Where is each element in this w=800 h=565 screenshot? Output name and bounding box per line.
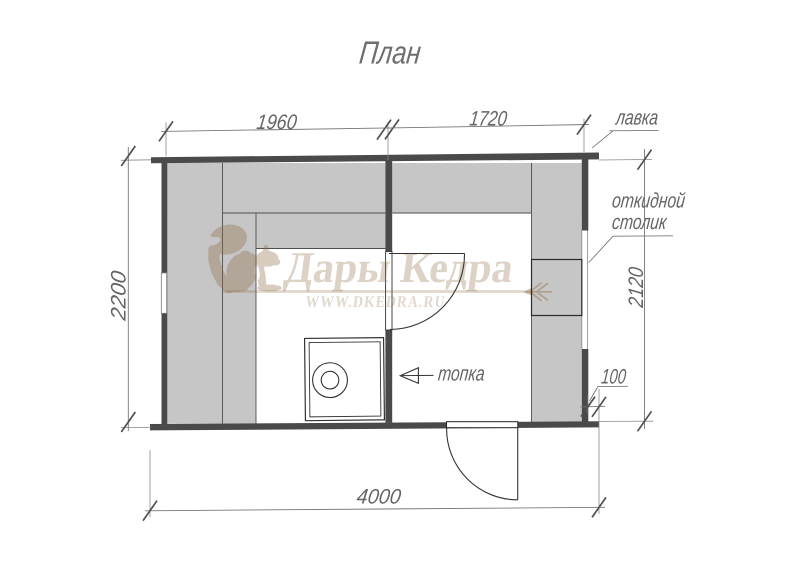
svg-text:топка: топка [437,361,486,385]
svg-text:откидной: откидной [611,188,686,212]
svg-text:2120: 2120 [625,266,649,310]
svg-text:лавка: лавка [614,105,659,129]
svg-text:Дары Кедра: Дары Кедра [282,244,516,292]
svg-text:2200: 2200 [106,269,130,323]
svg-text:1720: 1720 [468,108,508,131]
svg-text:столик: столик [611,210,669,234]
svg-text:План: План [357,36,422,71]
svg-text:1960: 1960 [255,111,298,135]
svg-text:WWW.DKEDRA.RU: WWW.DKEDRA.RU [304,294,446,311]
svg-text:4000: 4000 [355,485,403,509]
svg-text:100: 100 [600,365,627,388]
